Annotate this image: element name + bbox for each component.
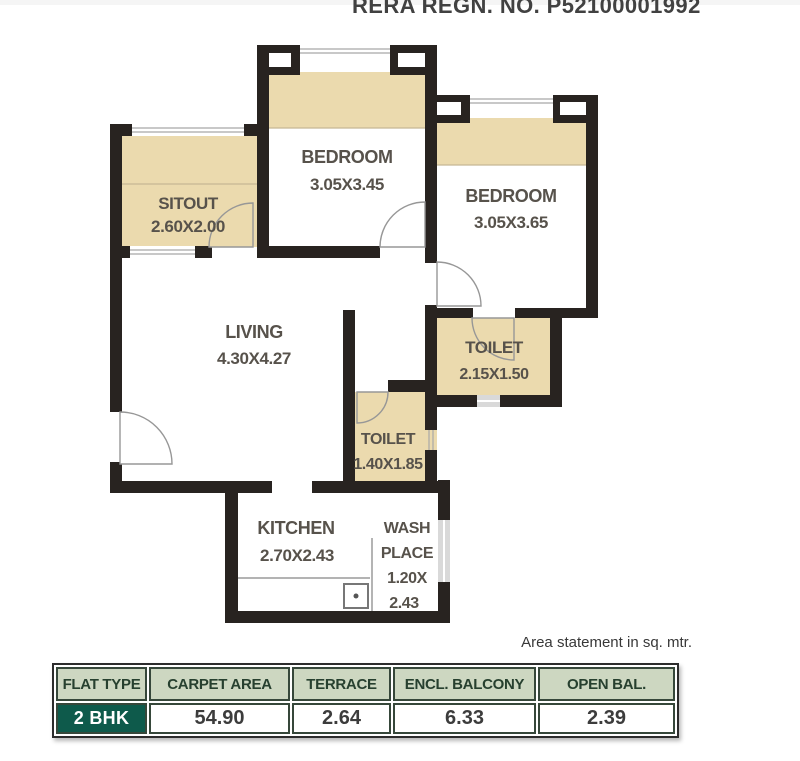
wash-place-line4: 2.43 <box>389 595 419 612</box>
terrace-value: 2.64 <box>292 703 391 734</box>
main-entrance-door <box>120 412 172 464</box>
bedroom-right-label: BEDROOM <box>465 186 556 206</box>
toilet-attached-dims: 2.15X1.50 <box>459 366 529 383</box>
living-label: LIVING <box>225 322 283 342</box>
floor-plan-page: RERA REGN. NO. P52100001992 <box>0 0 800 761</box>
bedroom-top-door <box>380 202 425 247</box>
toilet-attached-label: TOILET <box>465 338 524 357</box>
wash-place-line3: 1.20X <box>387 570 428 587</box>
col-header-carpet-area: CARPET AREA <box>149 667 290 701</box>
table-header-row: FLAT TYPE CARPET AREA TERRACE ENCL. BALC… <box>56 667 675 701</box>
kitchen-label: KITCHEN <box>257 518 334 538</box>
living-dims: 4.30X4.27 <box>217 349 291 368</box>
table-data-row: 2 BHK 54.90 2.64 6.33 2.39 <box>56 703 675 734</box>
wash-place-line1: WASH <box>384 520 430 537</box>
bedroom-top-label: BEDROOM <box>301 147 392 167</box>
flat-type-badge: 2 BHK <box>56 703 147 734</box>
kitchen-dims: 2.70X2.43 <box>260 546 334 565</box>
wash-place-line2: PLACE <box>381 545 434 562</box>
area-table: FLAT TYPE CARPET AREA TERRACE ENCL. BALC… <box>52 663 679 738</box>
open-bal-value: 2.39 <box>538 703 675 734</box>
toilet-common-dims: 1.40X1.85 <box>353 456 423 473</box>
bedroom-right-door <box>437 262 481 306</box>
bedroom-right-dims: 3.05X3.65 <box>474 213 548 232</box>
toilet-common-label: TOILET <box>361 431 416 448</box>
encl-balcony-value: 6.33 <box>393 703 536 734</box>
col-header-terrace: TERRACE <box>292 667 391 701</box>
bedroom-top-dims: 3.05X3.45 <box>310 175 384 194</box>
area-statement-note: Area statement in sq. mtr. <box>420 634 692 651</box>
col-header-flat-type: FLAT TYPE <box>56 667 147 701</box>
sitout-dims: 2.60X2.00 <box>151 217 225 236</box>
carpet-area-value: 54.90 <box>149 703 290 734</box>
sitout-label: SITOUT <box>158 194 219 213</box>
col-header-encl-balcony: ENCL. BALCONY <box>393 667 536 701</box>
col-header-open-bal: OPEN BAL. <box>538 667 675 701</box>
